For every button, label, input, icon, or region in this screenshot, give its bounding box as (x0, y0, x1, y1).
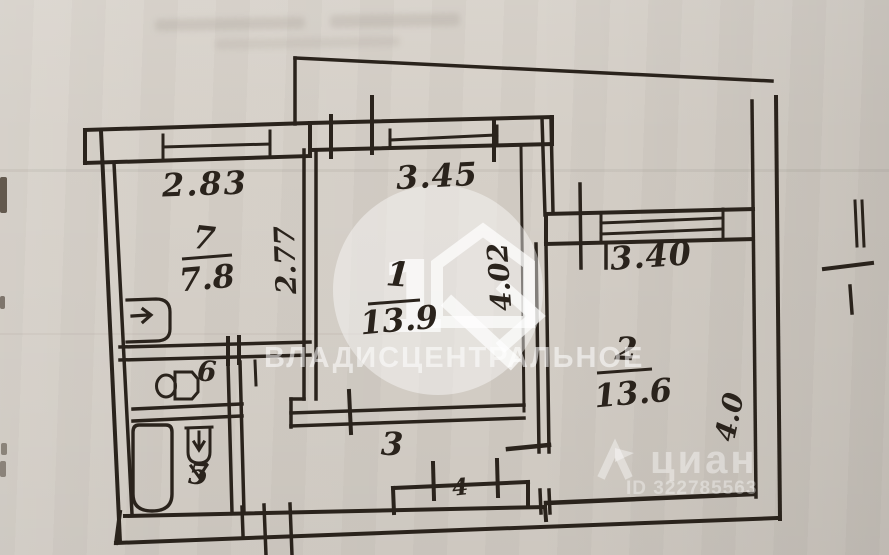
room6-number: 6 (197, 358, 217, 387)
dimension-room7-depth: 2.77 (271, 220, 302, 301)
cian-listing-id: ID 322785563 (626, 478, 757, 500)
scanned-floor-plan-page: 1 2.83 7 7.8 2.77 3.45 1 13.9 4.02 3.40 … (0, 0, 889, 555)
dimension-room1-depth: 4.02 (483, 234, 517, 320)
room3-number: 3 (380, 428, 403, 461)
dimension-room2-width: 3.40 (609, 237, 693, 275)
dimension-room1-width: 3.45 (395, 158, 478, 194)
cian-watermark-text: циан (650, 438, 758, 483)
room7-area: 7.8 (178, 260, 236, 297)
room4-number: 4 (451, 475, 469, 500)
agency-watermark-text: ВЛАДИСЦЕНТРАЛЬНОЕ (264, 342, 644, 375)
room1-number: 1 (385, 257, 411, 293)
dimension-room7-width: 2.83 (161, 167, 248, 202)
room1-area: 13.9 (359, 301, 439, 340)
room2-area: 13.6 (593, 374, 673, 413)
room5-number: 5 (187, 459, 210, 490)
room7-number: 7 (191, 221, 216, 255)
